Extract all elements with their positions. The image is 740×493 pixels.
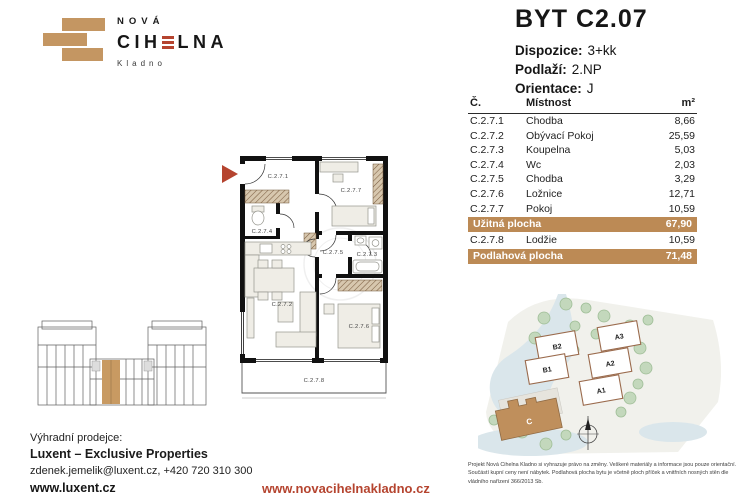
spec-value: 3+kk [588, 43, 617, 58]
room-label: C.2.7.4 [252, 229, 273, 235]
cell-num: C.2.7.7 [470, 202, 526, 217]
spec-label: Dispozice: [515, 43, 583, 58]
col-number: Č. [470, 97, 526, 109]
cell-area: 10,59 [645, 202, 695, 217]
room-table: Č. Místnost m² C.2.7.1Chodba8,66 C.2.7.2… [468, 94, 697, 265]
spec-podlazi: Podlaží:2.NP [515, 60, 648, 79]
seller-name: Luxent – Exclusive Properties [30, 447, 252, 461]
cell-num: C.2.7.6 [470, 187, 526, 202]
room-label: C.2.7.6 [349, 324, 370, 330]
cell-area: 2,03 [645, 158, 695, 173]
spec-value: 2.NP [572, 62, 602, 77]
table-row: C.2.7.7Pokoj10,59 [468, 202, 697, 217]
table-row: C.2.7.2Obývací Pokoj25,59 [468, 129, 697, 144]
cell-room: Wc [526, 158, 645, 173]
cell-room: Ložnice [526, 187, 645, 202]
cell-area: 10,59 [645, 233, 695, 248]
table-row: C.2.7.1Chodba8,66 [468, 114, 697, 129]
cell-num: C.2.7.3 [470, 143, 526, 158]
brand-name-top: NOVÁ [117, 16, 228, 27]
table-row: C.2.7.6Ložnice12,71 [468, 187, 697, 202]
summary-floor-area: Podlahová plocha71,48 [468, 249, 697, 264]
summary-usable-area: Užitná plocha67,90 [468, 217, 697, 232]
entrance-arrow-icon [222, 165, 238, 183]
room-label: C.2.7.1 [268, 174, 289, 180]
brand-cih: CIH [117, 32, 162, 53]
summary-value: 71,48 [666, 251, 692, 262]
room-label: C.2.7.3 [357, 252, 378, 258]
building-key-plan [28, 313, 216, 421]
apartment-title: BYT C2.07 [515, 5, 648, 34]
table-header: Č. Místnost m² [468, 94, 697, 114]
summary-label: Užitná plocha [473, 219, 541, 230]
summary-label: Podlahová plocha [473, 251, 563, 262]
room-label: C.2.7.8 [304, 378, 325, 384]
col-area: m² [645, 97, 695, 109]
cell-num: C.2.7.8 [470, 233, 526, 248]
seller-contact: zdenek.jemelik@luxent.cz, +420 720 310 3… [30, 465, 252, 477]
cell-room: Lodžie [526, 233, 645, 248]
cell-num: C.2.7.4 [470, 158, 526, 173]
red-e-bars-icon [162, 36, 174, 50]
brand-lna: LNA [178, 32, 229, 53]
cell-area: 5,03 [645, 143, 695, 158]
cell-room: Chodba [526, 172, 645, 187]
cell-area: 12,71 [645, 187, 695, 202]
seller-website-link[interactable]: www.luxent.cz [30, 481, 252, 493]
cell-room: Chodba [526, 114, 645, 129]
logo-bricks-icon [43, 18, 109, 64]
cell-num: C.2.7.1 [470, 114, 526, 129]
site-plan: B2 B1 A3 A2 A1 C [478, 292, 730, 460]
room-label: C.2.7.2 [272, 302, 293, 308]
project-website-link[interactable]: www.novacihelnakladno.cz [262, 481, 430, 493]
table-row: C.2.7.8Lodžie10,59 [468, 233, 697, 248]
brand-city: Kladno [117, 59, 228, 68]
cell-room: Pokoj [526, 202, 645, 217]
table-row: C.2.7.3Koupelna5,03 [468, 143, 697, 158]
brochure-page: NOVÁ CIH LNA Kladno BYT C2.07 Dispozice:… [0, 0, 740, 493]
seller-block: Výhradní prodejce: Luxent – Exclusive Pr… [30, 432, 252, 493]
cell-room: Koupelna [526, 143, 645, 158]
spec-dispozice: Dispozice:3+kk [515, 41, 648, 60]
table-row: C.2.7.4Wc2,03 [468, 158, 697, 173]
cell-area: 8,66 [645, 114, 695, 129]
disclaimer-text: Projekt Nová Cihelna Kladno si vyhrazuje… [468, 461, 740, 486]
brand-name-main: CIH LNA [117, 32, 228, 53]
apartment-header: BYT C2.07 Dispozice:3+kk Podlaží:2.NP Or… [515, 5, 648, 98]
table-row: C.2.7.5Chodba3,29 [468, 172, 697, 187]
cell-room: Obývací Pokoj [526, 129, 645, 144]
col-room: Místnost [526, 97, 645, 109]
summary-value: 67,90 [666, 219, 692, 230]
brand-logo: NOVÁ CIH LNA Kladno [40, 10, 250, 80]
cell-num: C.2.7.2 [470, 129, 526, 144]
floor-plan: C.2.7.1 C.2.7.2 C.2.7.3 C.2.7.4 C.2.7.5 … [220, 136, 412, 404]
room-label: C.2.7.5 [323, 250, 344, 256]
seller-label: Výhradní prodejce: [30, 432, 252, 444]
cell-area: 25,59 [645, 129, 695, 144]
cell-num: C.2.7.5 [470, 172, 526, 187]
room-label: C.2.7.7 [341, 188, 362, 194]
spec-label: Podlaží: [515, 62, 567, 77]
cell-area: 3,29 [645, 172, 695, 187]
